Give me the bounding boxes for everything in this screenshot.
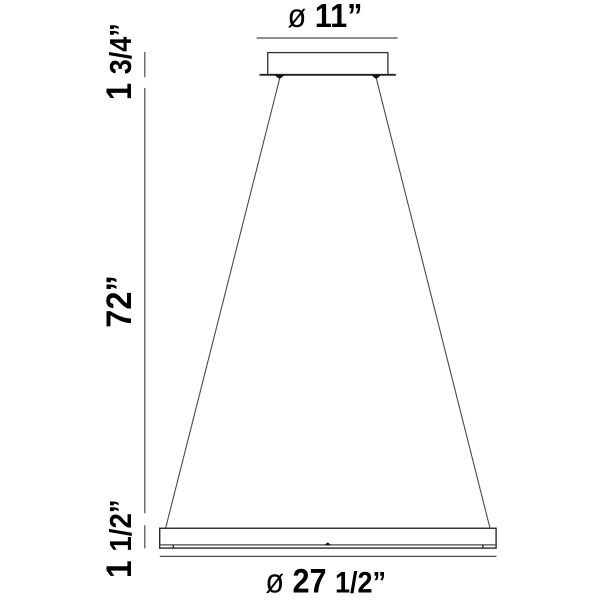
svg-text:72”: 72” [100, 275, 139, 327]
svg-text:1 3/4”: 1 3/4” [100, 23, 139, 100]
svg-text:ø 11”: ø 11” [287, 0, 362, 34]
svg-text:ø 27 1/2”: ø 27 1/2” [265, 562, 386, 600]
svg-text:1 1/2”: 1 1/2” [101, 499, 140, 578]
